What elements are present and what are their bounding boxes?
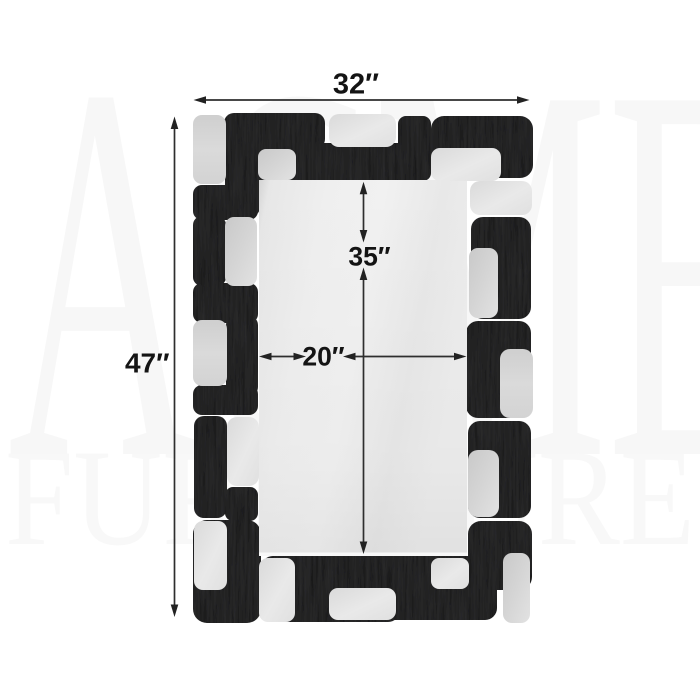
svg-text:20″: 20″ <box>302 342 344 372</box>
svg-text:35″: 35″ <box>348 242 390 272</box>
svg-text:47″: 47″ <box>125 348 170 379</box>
svg-text:32″: 32″ <box>333 69 379 101</box>
